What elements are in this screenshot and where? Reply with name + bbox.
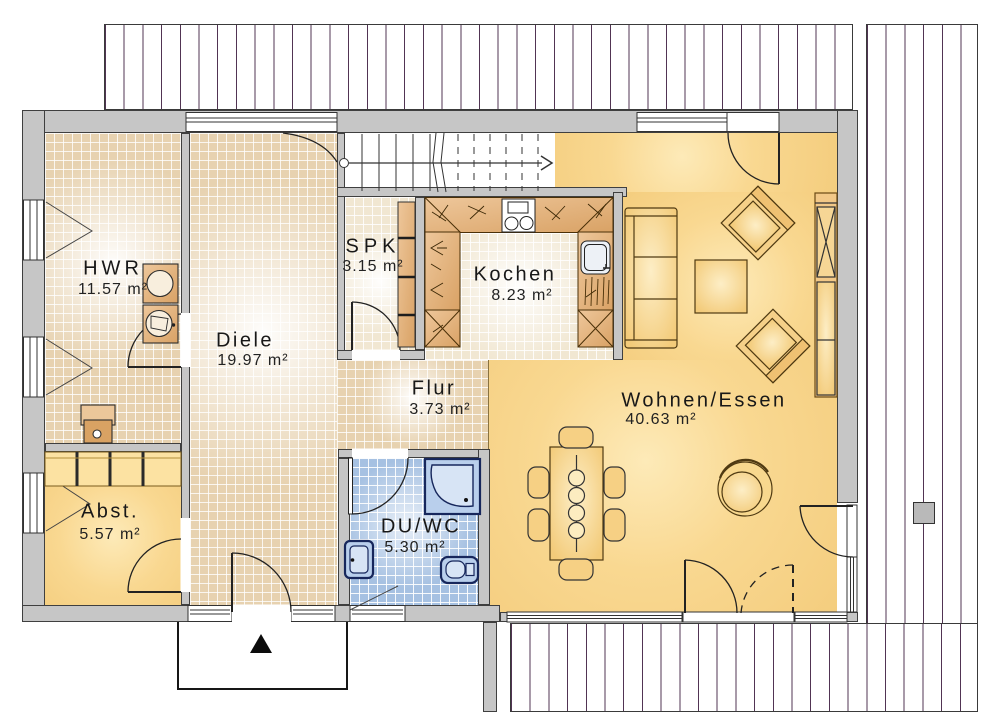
- door-opening-terrace-right: [847, 505, 857, 557]
- room-area-flur: 3.73 m²: [409, 401, 470, 419]
- room-area-abst: 5.57 m²: [79, 526, 140, 544]
- washbasin-icon: [345, 541, 373, 578]
- door-opening-spk: [352, 350, 400, 361]
- door-abst: [128, 539, 181, 592]
- storage-shelf: [45, 452, 181, 486]
- window-abst: [24, 473, 44, 533]
- door-opening-abst: [181, 518, 191, 592]
- room-label-wohnen: Wohnen/Essen: [621, 390, 786, 413]
- door-french-left: [685, 560, 737, 613]
- armchair-1: [721, 186, 795, 260]
- dining-chair: [604, 509, 625, 541]
- shelf-unit: [815, 193, 837, 397]
- sofa: [625, 208, 677, 348]
- dining-chair: [528, 467, 549, 498]
- dining-chair: [528, 509, 549, 541]
- dining-chair: [559, 427, 593, 448]
- dining-chair: [604, 467, 625, 498]
- room-area-diele: 19.97 m²: [217, 352, 288, 370]
- room-area-duwc: 5.30 m²: [384, 539, 445, 557]
- door-spk: [352, 302, 400, 350]
- toilet-icon: [441, 557, 478, 583]
- floor-plan: HWR 11.57 m² Diele 19.97 m² SPK 3.15 m² …: [0, 0, 1000, 722]
- room-area-kochen: 8.23 m²: [491, 287, 552, 305]
- room-area-spk: 3.15 m²: [342, 258, 403, 276]
- window-hwr-1: [24, 200, 44, 260]
- room-label-hwr: HWR: [83, 258, 143, 281]
- door-duwc: [349, 458, 409, 514]
- window-living-bottom-1: [507, 612, 682, 622]
- door-stairs: [283, 133, 337, 162]
- kitchen-sink-icon: [581, 241, 610, 274]
- door-opening-hwr: [181, 313, 191, 367]
- lounge-chair: [718, 460, 772, 516]
- room-label-kochen: Kochen: [474, 264, 557, 287]
- shower-icon: [425, 459, 480, 514]
- room-area-wohnen: 40.63 m²: [625, 411, 696, 429]
- stairs: [340, 133, 553, 192]
- door-opening-french: [683, 612, 794, 622]
- living-furniture: [528, 186, 837, 580]
- door-entry: [232, 553, 291, 612]
- window-living-bottom-2: [795, 612, 847, 622]
- door-french-right: [741, 565, 793, 613]
- stair-direction-arrow: [541, 156, 552, 170]
- room-label-spk: SPK: [345, 236, 400, 259]
- room-label-flur: Flur: [412, 378, 456, 401]
- dryer-icon: [143, 305, 178, 343]
- door-opening-entry: [232, 605, 291, 623]
- laundry-sink-icon: [81, 405, 115, 443]
- washer-icon: [143, 264, 178, 303]
- dining-table: [550, 447, 603, 560]
- room-label-duwc: DU/WC: [381, 516, 461, 539]
- door-opening-duwc: [352, 449, 408, 459]
- room-area-hwr: 11.57 m²: [78, 281, 148, 299]
- dining-chair: [559, 559, 593, 580]
- plan-linework: [0, 0, 1000, 722]
- window-living-right: [847, 557, 857, 612]
- stove-icon: [502, 199, 535, 232]
- room-label-abst: Abst.: [81, 501, 139, 524]
- coffee-table: [695, 260, 747, 313]
- armchair-2: [736, 309, 810, 383]
- window-hwr-2: [24, 337, 44, 397]
- door-terrace-right: [800, 506, 853, 557]
- door-opening-terrace-top: [727, 113, 779, 132]
- room-label-diele: Diele: [216, 330, 274, 353]
- door-terrace-top: [728, 133, 779, 184]
